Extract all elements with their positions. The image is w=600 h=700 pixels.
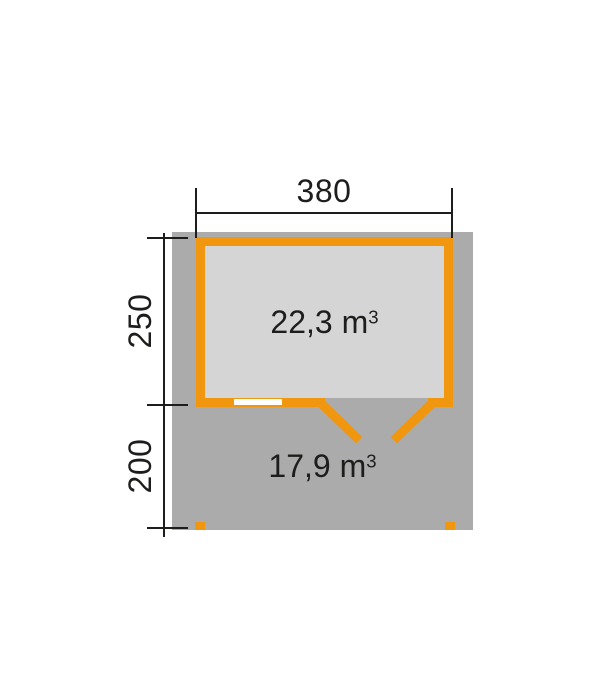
terrace-volume-label: 17,9m3 [172, 449, 473, 483]
terrace-volume-exponent: 3 [366, 450, 376, 471]
width-dimension-line [196, 212, 452, 214]
height-dimension-tick-top [147, 237, 188, 239]
window-marker [234, 399, 282, 405]
room-depth-dimension-label: 250 [122, 261, 158, 381]
post-left [195, 522, 205, 530]
room-volume-exponent: 3 [368, 306, 378, 327]
wall-top [196, 237, 453, 246]
room-volume-unit: m [342, 304, 369, 340]
height-dimension-tick-bottom [147, 527, 188, 529]
post-right [445, 522, 455, 530]
terrace-volume-value: 17,9 [268, 448, 330, 484]
room-volume-label: 22,3m3 [196, 305, 453, 339]
terrace-volume-unit: m [340, 448, 367, 484]
width-dimension-label: 380 [196, 174, 452, 208]
room-volume-value: 22,3 [270, 304, 332, 340]
floorplan-diagram: 380 250 200 22,3m3 17,9m3 [0, 0, 600, 700]
height-dimension-line [163, 233, 165, 537]
terrace-depth-dimension-label: 200 [122, 406, 158, 526]
